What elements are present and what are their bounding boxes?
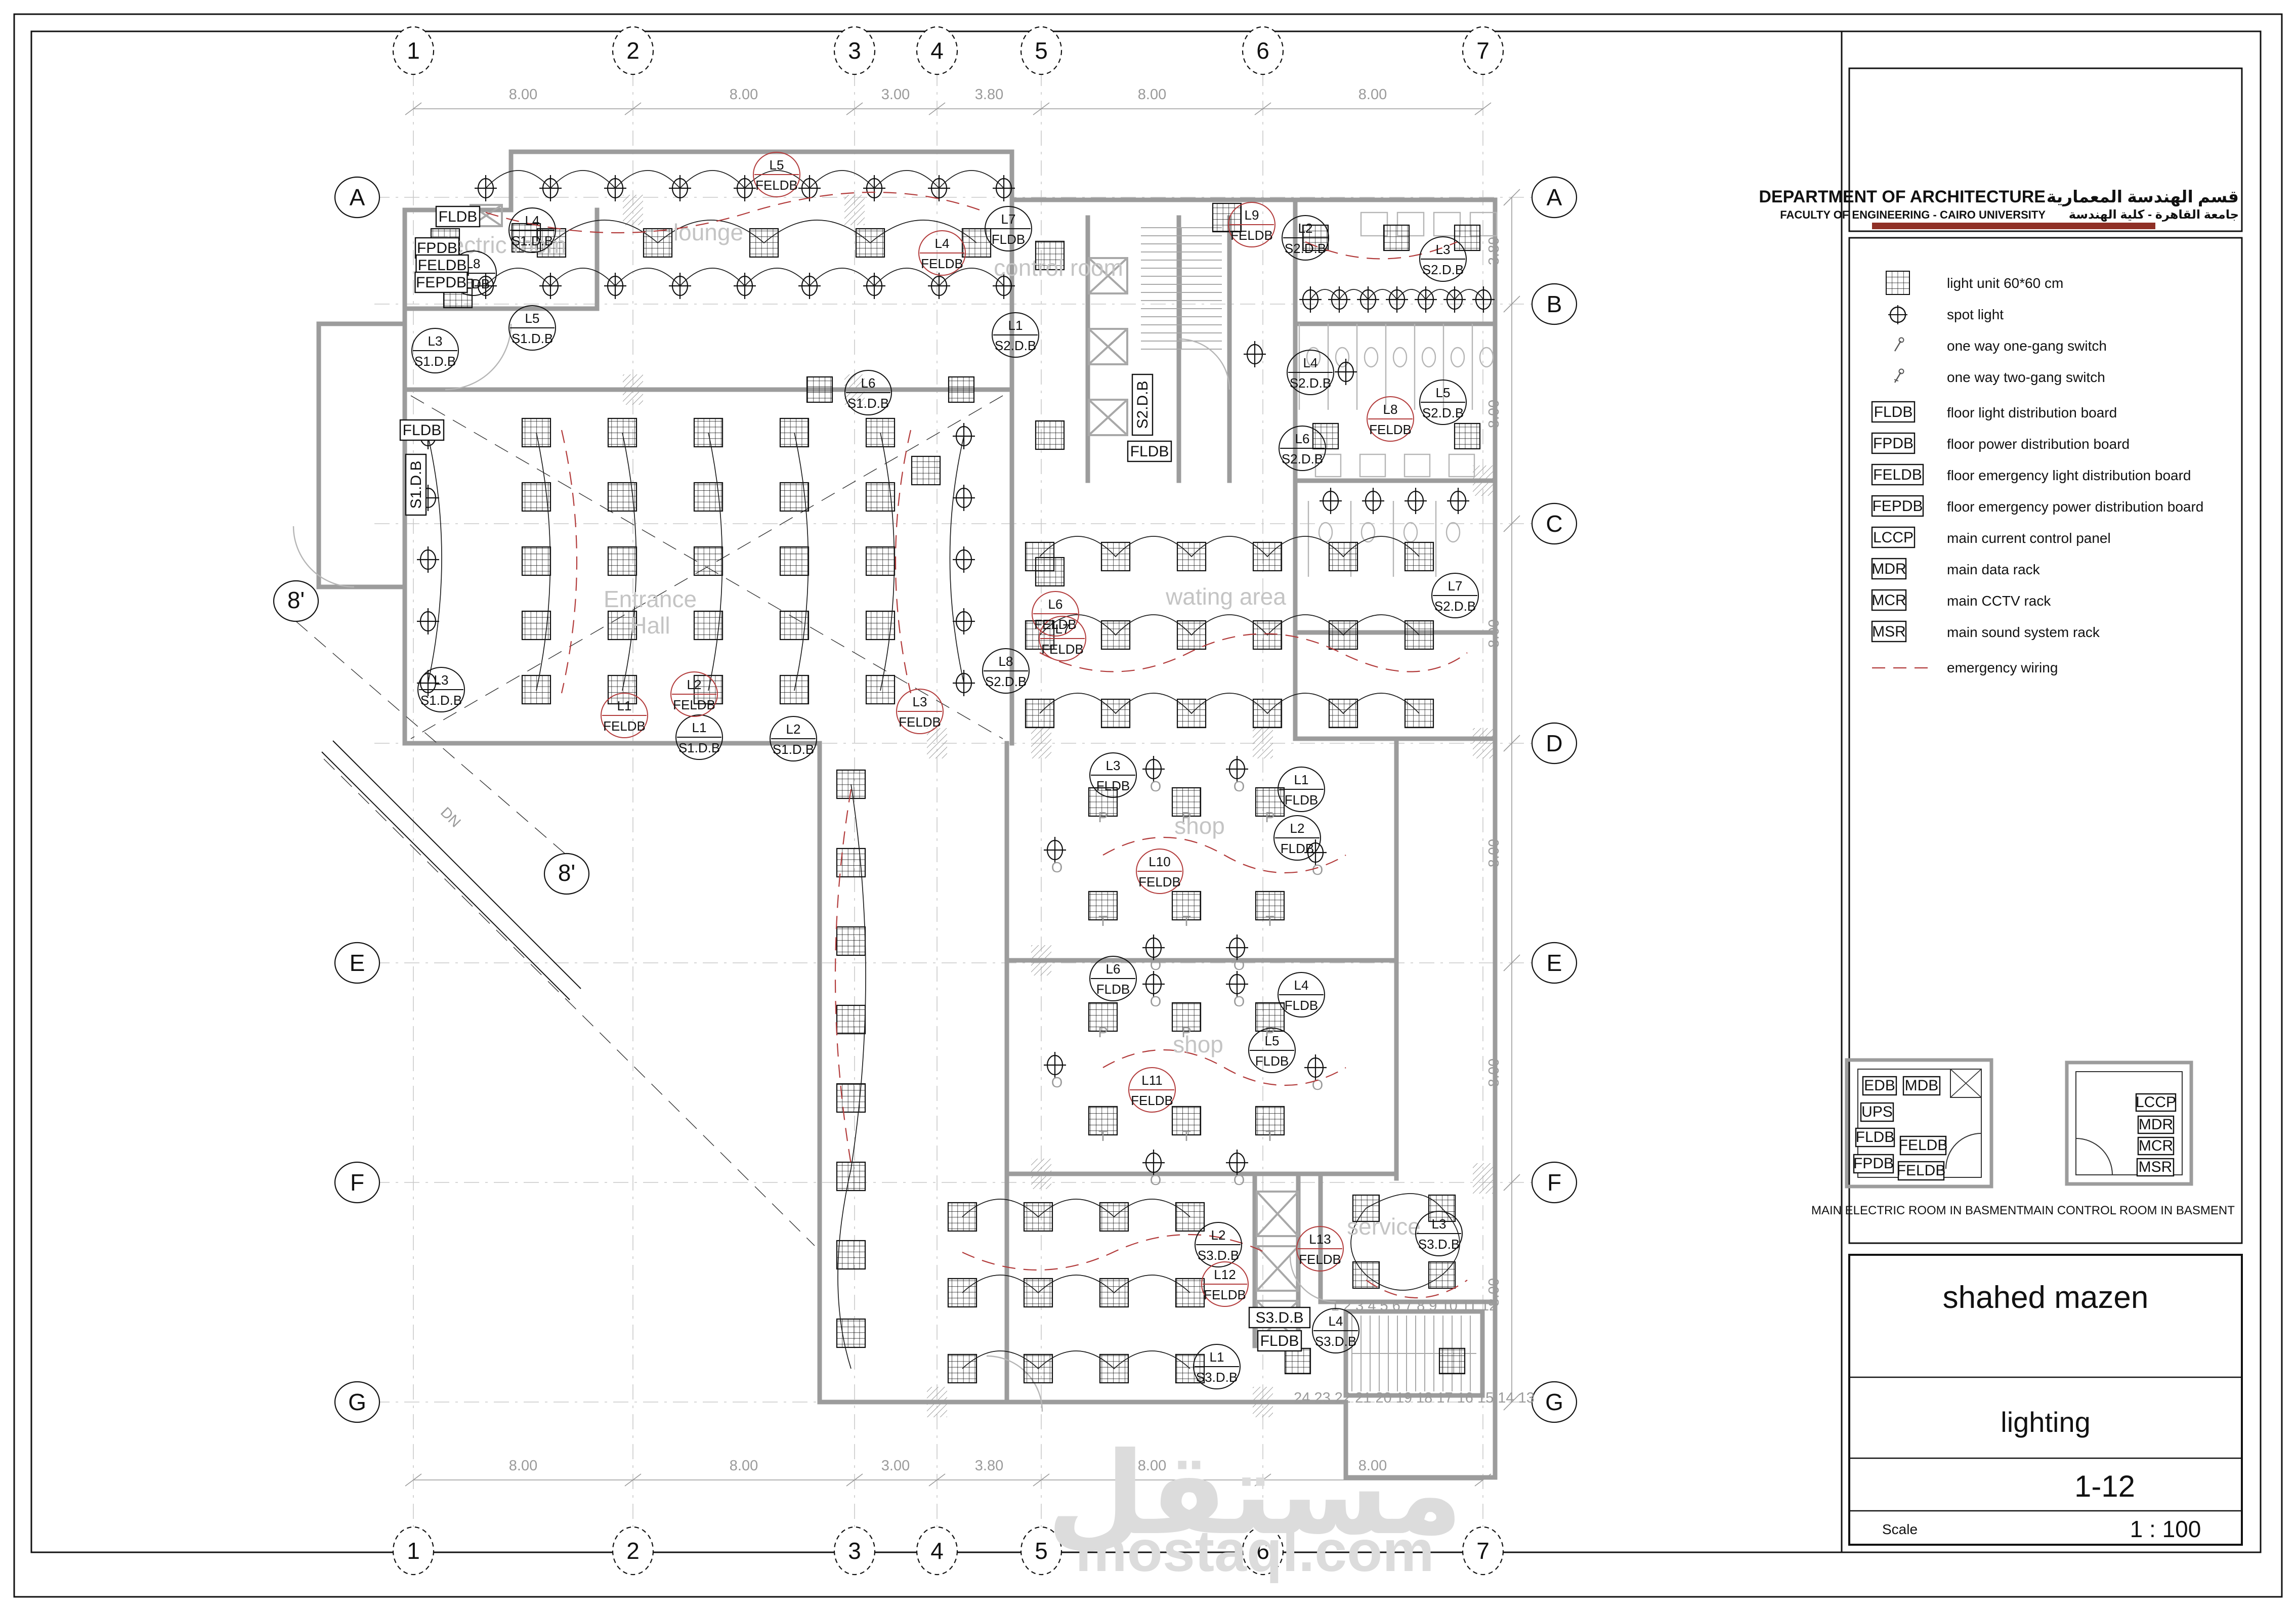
panel-box-label: FELDB (1899, 1137, 1948, 1154)
circuit-tag: L1FLDB (1278, 767, 1325, 812)
circuit-tag: L5FLDB (1249, 1028, 1295, 1073)
tag-circuit: L2 (1290, 821, 1305, 836)
tag-circuit: L12 (1214, 1267, 1236, 1282)
svg-text:O: O (1150, 1172, 1162, 1189)
grid-column-label: 3 (848, 1538, 861, 1564)
svg-text:O: O (1150, 957, 1162, 973)
circuit-tag: L2S2.D.B (1282, 216, 1329, 260)
tag-board: S1.D.B (773, 742, 814, 757)
board-label: S2.D.B (1132, 374, 1153, 435)
faculty-name-ar: جامعة القاهرة - كلية الهندسة (2069, 208, 2239, 222)
tag-circuit: L4 (1329, 1313, 1343, 1329)
panel-box-label: MCR (2139, 1137, 2173, 1154)
tag-board: FLDB (1096, 982, 1130, 997)
tag-board: S3.D.B (1198, 1248, 1239, 1263)
light-unit (522, 611, 550, 640)
drawing-sheet: 112233445566778.008.008.008.003.003.003.… (0, 0, 2296, 1611)
wall-column (927, 728, 947, 758)
tag-circuit: L2 (1211, 1227, 1226, 1243)
light-unit (837, 1241, 865, 1269)
legend-label: emergency wiring (1947, 660, 2058, 675)
panel-box-label: FPDB (1853, 1155, 1894, 1172)
tag-board: S3.D.B (1418, 1237, 1460, 1252)
svg-text:FLDB: FLDB (1130, 443, 1169, 460)
tag-circuit: L11 (1141, 1073, 1162, 1088)
grid-row-label: F (350, 1169, 364, 1196)
light-unit (522, 547, 550, 575)
tag-circuit: L5 (770, 157, 784, 173)
light-unit (1384, 225, 1409, 250)
wall-column (623, 374, 643, 405)
tag-board: S2.D.B (995, 338, 1036, 353)
grid-column-label: 2 (626, 1538, 640, 1564)
tag-circuit: L5 (1265, 1033, 1280, 1048)
wall-column (623, 195, 643, 225)
svg-text:FPDB: FPDB (417, 240, 457, 257)
tag-board: FELDB (1034, 617, 1077, 632)
grid-row-label: A (1547, 184, 1562, 210)
grid-column-label: 1 (407, 1538, 420, 1564)
panel-box-label: LCCP (2136, 1094, 2176, 1111)
svg-text:T: T (1182, 1128, 1191, 1144)
light-unit (949, 377, 974, 402)
sheet-number: 1-12 (2074, 1469, 2135, 1503)
svg-text:S1.D.B: S1.D.B (408, 460, 424, 508)
circuit-tag: L7FLDB (985, 206, 1032, 251)
tag-circuit: L7 (1448, 578, 1463, 593)
board-tag-label: FEPDB (1872, 498, 1923, 515)
svg-text:FLDB: FLDB (403, 422, 442, 439)
circuit-tag: L6FLDB (1090, 956, 1136, 1001)
tag-circuit: L1 (617, 698, 632, 713)
legend-label: main sound system rack (1947, 624, 2100, 640)
room-label: shop (1173, 1031, 1223, 1057)
drawing-title: lighting (2001, 1406, 2090, 1438)
board-label: FLDB (400, 420, 444, 440)
circuit-tag: L1S3.D.B (1194, 1344, 1240, 1389)
board-label: FEPDB (415, 272, 467, 292)
board-tag-label: MCR (1872, 592, 1906, 609)
board-label: FLDB (1128, 441, 1171, 461)
svg-text:O: O (1234, 779, 1245, 795)
circuit-tag: L1S1.D.B (676, 715, 722, 759)
room-label: service (1347, 1213, 1421, 1240)
tag-board: FLDB (1285, 792, 1318, 808)
circuit-tag: L7S2.D.B (1432, 573, 1478, 618)
circuit-tag: L5S1.D.B (509, 306, 556, 350)
board-tag-label: MDR (1872, 561, 1906, 577)
tag-circuit: L13 (1309, 1232, 1331, 1247)
wall-column (1473, 465, 1493, 496)
light-unit (694, 611, 722, 640)
light-unit (1439, 1348, 1465, 1374)
dim-value: 8.00 (509, 87, 537, 103)
tag-board: S2.D.B (1422, 405, 1464, 420)
legend-item: MCRmain CCTV rack (1872, 590, 2051, 610)
tag-circuit: L1 (1210, 1349, 1224, 1365)
tag-board: FELDB (899, 714, 941, 730)
dept-name-en: DEPARTMENT OF ARCHITECTURE (1759, 187, 2046, 206)
tag-board: S2.D.B (1434, 599, 1476, 614)
circuit-tag: L1S2.D.B (992, 313, 1039, 357)
grid-row-label: B (1547, 291, 1562, 317)
section-marker-label: 8' (558, 860, 575, 886)
board-tag-label: FPDB (1873, 435, 1914, 452)
svg-text:FLDB: FLDB (439, 208, 478, 225)
dim-value: 8.00 (1358, 87, 1387, 103)
legend-label: main current control panel (1947, 530, 2111, 546)
wall-column (844, 195, 865, 225)
grid-row-label: E (1547, 950, 1562, 976)
legend-label: floor emergency power distribution board (1947, 499, 2203, 515)
room-label: wating area (1165, 583, 1286, 610)
circuit-tag: L4FLDB (1278, 972, 1325, 1017)
svg-text:T: T (1182, 913, 1191, 929)
svg-text:S2.D.B: S2.D.B (1134, 380, 1151, 429)
light-unit (866, 547, 895, 575)
tag-board: S1.D.B (512, 331, 553, 346)
legend-label: light unit 60*60 cm (1947, 275, 2063, 291)
grid-row-label: A (350, 184, 365, 210)
tag-circuit: L4 (525, 213, 540, 228)
dim-value: 8.00 (1138, 87, 1166, 103)
tag-circuit: L4 (1303, 355, 1318, 370)
panel-box-label: EDB (1864, 1077, 1895, 1094)
tag-circuit: L6 (861, 375, 876, 391)
tag-circuit: L8 (1383, 402, 1398, 417)
room-label: Entrance (604, 586, 697, 612)
light-unit (780, 547, 809, 575)
grid-row-label: C (1546, 511, 1562, 537)
legend-item: FLDBfloor light distribution board (1872, 402, 2117, 422)
light-unit (522, 483, 550, 511)
tag-circuit: L2 (1298, 221, 1313, 236)
board-label: S3.D.B (1249, 1307, 1310, 1328)
grid-row-label: E (350, 950, 365, 976)
light-unit (866, 611, 895, 640)
faculty-name-en: FACULTY OF ENGINEERING - CAIRO UNIVERSIT… (1780, 208, 2046, 221)
logo-bar (1872, 223, 2155, 229)
wall-column (1031, 945, 1051, 976)
panel-box-label: FLDB (1856, 1129, 1895, 1146)
svg-text:T: T (1265, 913, 1274, 929)
circuit-tag: L4S3.D.B (1312, 1308, 1359, 1353)
grid-column-label: 5 (1035, 1538, 1048, 1564)
board-label: FLDB (1258, 1331, 1301, 1351)
circuit-tag: L2S1.D.B (770, 716, 817, 761)
circuit-tag: L2S3.D.B (1195, 1222, 1242, 1267)
circuit-tag: L9FELDB (1228, 202, 1275, 247)
grid-row-label: F (1547, 1169, 1561, 1196)
project-name: shahed mazen (1943, 1280, 2149, 1315)
stair-numbers: 1 2 3 4 5 6 7 8 9 10 11 12 (1331, 1298, 1497, 1314)
svg-text:O: O (1234, 1172, 1245, 1189)
tag-board: S3.D.B (1315, 1334, 1356, 1349)
tag-circuit: L1 (1294, 772, 1309, 787)
tag-board: S2.D.B (1290, 375, 1331, 391)
svg-text:FLDB: FLDB (1260, 1333, 1299, 1349)
circuit-tag: L3S1.D.B (412, 328, 458, 373)
tag-circuit: L6 (1048, 597, 1063, 612)
wall-column (1031, 1159, 1051, 1189)
tag-board: FELDB (1041, 642, 1084, 657)
svg-text:O: O (1312, 862, 1324, 878)
dim-value: 3.80 (975, 87, 1003, 103)
tag-board: FLDB (992, 232, 1025, 247)
circuit-tag: L3FELDB (897, 689, 943, 734)
tag-circuit: L7 (1001, 211, 1016, 227)
legend-label: main CCTV rack (1947, 593, 2051, 609)
circuit-tag: L6FELDB (1032, 591, 1079, 636)
tag-circuit: L1 (1008, 318, 1023, 333)
tag-board: S1.D.B (512, 233, 553, 248)
circuit-tag: L2FLDB (1274, 816, 1321, 860)
board-tag-label: MSR (1872, 623, 1906, 640)
svg-text:O: O (1234, 994, 1245, 1010)
room-label: control room (994, 255, 1123, 281)
svg-text:S3.D.B: S3.D.B (1255, 1309, 1303, 1326)
electric-room-caption: MAIN ELECTRIC ROOM IN BASMENT (1811, 1204, 2024, 1217)
circuit-tag: L3FLDB (1090, 753, 1136, 797)
tag-board: FELDB (1299, 1252, 1341, 1267)
legend-label: floor light distribution board (1947, 405, 2117, 420)
dept-name-ar: قسم الهندسة المعمارية (2047, 187, 2239, 207)
svg-text:T: T (1098, 1128, 1108, 1144)
tag-board: S2.D.B (985, 674, 1027, 689)
tag-circuit: L8 (999, 654, 1013, 669)
legend-item: LCCPmain current control panel (1872, 527, 2111, 547)
svg-text:P: P (1265, 810, 1274, 826)
tag-circuit: L2 (786, 722, 801, 737)
tag-circuit: L4 (1294, 978, 1309, 993)
light-unit (780, 611, 809, 640)
wall-column (1473, 728, 1493, 758)
svg-text:P: P (1098, 810, 1108, 826)
grid-column-label: 5 (1035, 37, 1048, 64)
tag-board: FLDB (1096, 778, 1130, 793)
circuit-tag: L10FELDB (1136, 849, 1183, 894)
circuit-tag: L1FELDB (601, 693, 648, 738)
circuit-tag: L5S2.D.B (1420, 380, 1466, 425)
circuit-tag: L6S2.D.B (1279, 426, 1326, 471)
svg-text:O: O (1150, 779, 1162, 795)
tag-board: S2.D.B (1282, 451, 1323, 467)
svg-text:T: T (1265, 1128, 1274, 1144)
legend-label: main data rack (1947, 562, 2040, 577)
grid-column-label: 2 (626, 37, 640, 64)
room-label: shop (1174, 813, 1225, 839)
light-unit (608, 483, 636, 511)
svg-text:O: O (1312, 1077, 1324, 1093)
panel-box-label: MDB (1905, 1077, 1939, 1094)
tag-board: S1.D.B (847, 396, 889, 411)
circuit-tag: L3S3.D.B (1416, 1211, 1462, 1256)
legend-label: spot light (1947, 307, 2004, 322)
dim-value: 3.00 (881, 1458, 910, 1474)
board-tag-label: FELDB (1873, 467, 1922, 483)
light-unit (837, 1005, 865, 1034)
wall-column (1031, 728, 1051, 758)
lighting-plan-sheet: 112233445566778.008.008.008.003.003.003.… (0, 0, 2296, 1611)
circuit-tag: L12FELDB (1202, 1262, 1248, 1306)
legend-label: one way one-gang switch (1947, 338, 2107, 354)
tag-circuit: L3 (434, 672, 449, 688)
grid-column-label: 4 (930, 1538, 944, 1564)
tag-board: S1.D.B (678, 740, 720, 755)
grid-column-label: 7 (1476, 37, 1490, 64)
svg-text:P: P (1098, 1025, 1108, 1041)
tag-board: FELDB (1131, 1093, 1173, 1108)
circuit-tag: L4FELDB (919, 231, 965, 275)
svg-text:O: O (1150, 994, 1162, 1010)
tag-board: FELDB (921, 256, 963, 271)
room-label: lounge (673, 219, 743, 245)
circuit-tag: L2FELDB (671, 672, 717, 716)
board-label: S1.D.B (406, 454, 426, 515)
svg-text:FEPDB: FEPDB (416, 274, 466, 291)
circuit-tag: L3S1.D.B (418, 667, 464, 712)
tag-circuit: L3 (913, 694, 927, 709)
tag-board: S1.D.B (414, 354, 456, 369)
light-unit (807, 377, 832, 402)
dim-value: 8.00 (730, 1458, 758, 1474)
watermark-latin: mostaql.com (1075, 1519, 1434, 1584)
tag-circuit: L6 (1106, 961, 1121, 977)
tag-board: FLDB (1285, 998, 1318, 1013)
tag-board: FELDB (1204, 1287, 1246, 1302)
stair-numbers: 24 23 22 21 20 19 18 17 16 15 14 13 (1294, 1390, 1535, 1406)
tag-circuit: L3 (1106, 758, 1121, 773)
legend-item: FEPDBfloor emergency power distribution … (1872, 496, 2203, 516)
light-unit (694, 547, 722, 575)
grid-row-label: G (348, 1389, 366, 1415)
svg-text:O: O (1051, 1075, 1063, 1091)
right-panel: FOUNDED IN 1816light unit 60*60 cmspot l… (1811, 83, 2242, 1243)
tag-board: FELDB (603, 718, 646, 734)
legend-label: floor emergency light distribution board (1947, 468, 2191, 483)
dim-value: 3.00 (881, 87, 910, 103)
scale-label: Scale (1882, 1521, 1918, 1537)
circuit-tag: L5FELDB (753, 152, 800, 197)
light-unit (608, 547, 636, 575)
tag-board: FLDB (1255, 1053, 1289, 1069)
light-unit (837, 927, 865, 955)
circuit-tag: L8S2.D.B (983, 649, 1029, 693)
tag-circuit: L1 (692, 720, 707, 735)
legend-item: FPDBfloor power distribution board (1872, 433, 2130, 453)
light-unit-icon (1886, 271, 1909, 294)
tag-board: FELDB (755, 178, 798, 193)
svg-text:FELDB: FELDB (418, 257, 467, 274)
scale-value: 1 : 100 (2130, 1516, 2201, 1542)
grid-column-label: 7 (1476, 1538, 1490, 1564)
legend-label: one way two-gang switch (1947, 369, 2105, 385)
tag-board: FLDB (1281, 841, 1314, 856)
tag-circuit: L3 (428, 333, 443, 349)
tag-circuit: L10 (1149, 854, 1170, 869)
grid-column-label: 4 (930, 37, 944, 64)
circuit-tag: L4S2.D.B (1287, 350, 1334, 395)
tag-circuit: L4 (935, 236, 950, 251)
panel-box-label: UPS (1861, 1104, 1893, 1120)
panel-box-label: MDR (2139, 1116, 2173, 1133)
wall-column (1473, 1163, 1493, 1194)
circuit-tag: L4S1.D.B (509, 208, 556, 252)
tag-board: S2.D.B (1285, 241, 1326, 256)
light-unit (780, 483, 809, 511)
tag-board: FELDB (673, 697, 715, 712)
grid-row-label: D (1546, 730, 1562, 756)
legend-item: FELDBfloor emergency light distribution … (1872, 464, 2191, 485)
legend-item: MSRmain sound system rack (1872, 621, 2100, 642)
tag-circuit: L9 (1245, 207, 1259, 223)
room-label: Hall (630, 612, 670, 639)
title-block: shahed mazen lighting 1-12 Scale 1 : 100 (1849, 1255, 2242, 1545)
light-unit (694, 483, 722, 511)
grid-column-label: 3 (848, 37, 861, 64)
wall-column (927, 1387, 947, 1417)
tag-circuit: L5 (525, 311, 540, 326)
light-unit (866, 483, 895, 511)
svg-text:O: O (1051, 860, 1063, 876)
tag-board: FELDB (1138, 874, 1181, 889)
circuit-tag: L6S1.D.B (845, 370, 891, 415)
circuit-tag: L8FELDB (1367, 397, 1414, 441)
circuit-tag: L11FELDB (1129, 1068, 1175, 1112)
panel-box-label: FELDB (1897, 1162, 1946, 1179)
svg-text:O: O (1234, 957, 1245, 973)
tag-board: FELDB (1230, 228, 1273, 243)
grid-row-label: G (1545, 1389, 1563, 1415)
tag-board: S1.D.B (420, 693, 462, 708)
circuit-tag: L13FELDB (1297, 1226, 1343, 1271)
panel-box-label: MSR (2139, 1159, 2173, 1175)
tag-circuit: L3 (1432, 1216, 1447, 1232)
grid-column-label: 1 (407, 37, 420, 64)
dim-value: 8.00 (509, 1458, 537, 1474)
board-label: FLDB (436, 206, 480, 227)
dim-value: 3.80 (975, 1458, 1003, 1474)
legend-item: MDRmain data rack (1872, 559, 2040, 579)
wall-column (1253, 1387, 1273, 1417)
svg-text:T: T (1098, 913, 1108, 929)
tag-board: S3.D.B (1196, 1370, 1238, 1385)
light-unit (912, 456, 940, 485)
dim-value: 8.00 (730, 87, 758, 103)
control-room-caption: MAIN CONTROL ROOM IN BASMENT (2023, 1204, 2235, 1217)
tag-circuit: L6 (1295, 431, 1310, 446)
tag-circuit: L2 (687, 677, 702, 692)
tag-board: FELDB (1369, 422, 1412, 437)
legend-label: floor power distribution board (1947, 436, 2130, 452)
light-unit (1285, 1348, 1310, 1374)
tag-circuit: L5 (1436, 385, 1451, 400)
circuit-tag: L3S2.D.B (1420, 237, 1466, 281)
tag-board: S2.D.B (1422, 262, 1464, 277)
wall-column (1253, 728, 1273, 758)
board-tag-label: LCCP (1873, 529, 1914, 546)
grid-column-label: 6 (1256, 37, 1269, 64)
section-marker-label: 8' (287, 587, 305, 613)
board-tag-label: FLDB (1874, 404, 1913, 420)
light-unit (1455, 423, 1480, 449)
light-unit (1036, 421, 1064, 449)
tag-circuit: L3 (1436, 242, 1451, 257)
